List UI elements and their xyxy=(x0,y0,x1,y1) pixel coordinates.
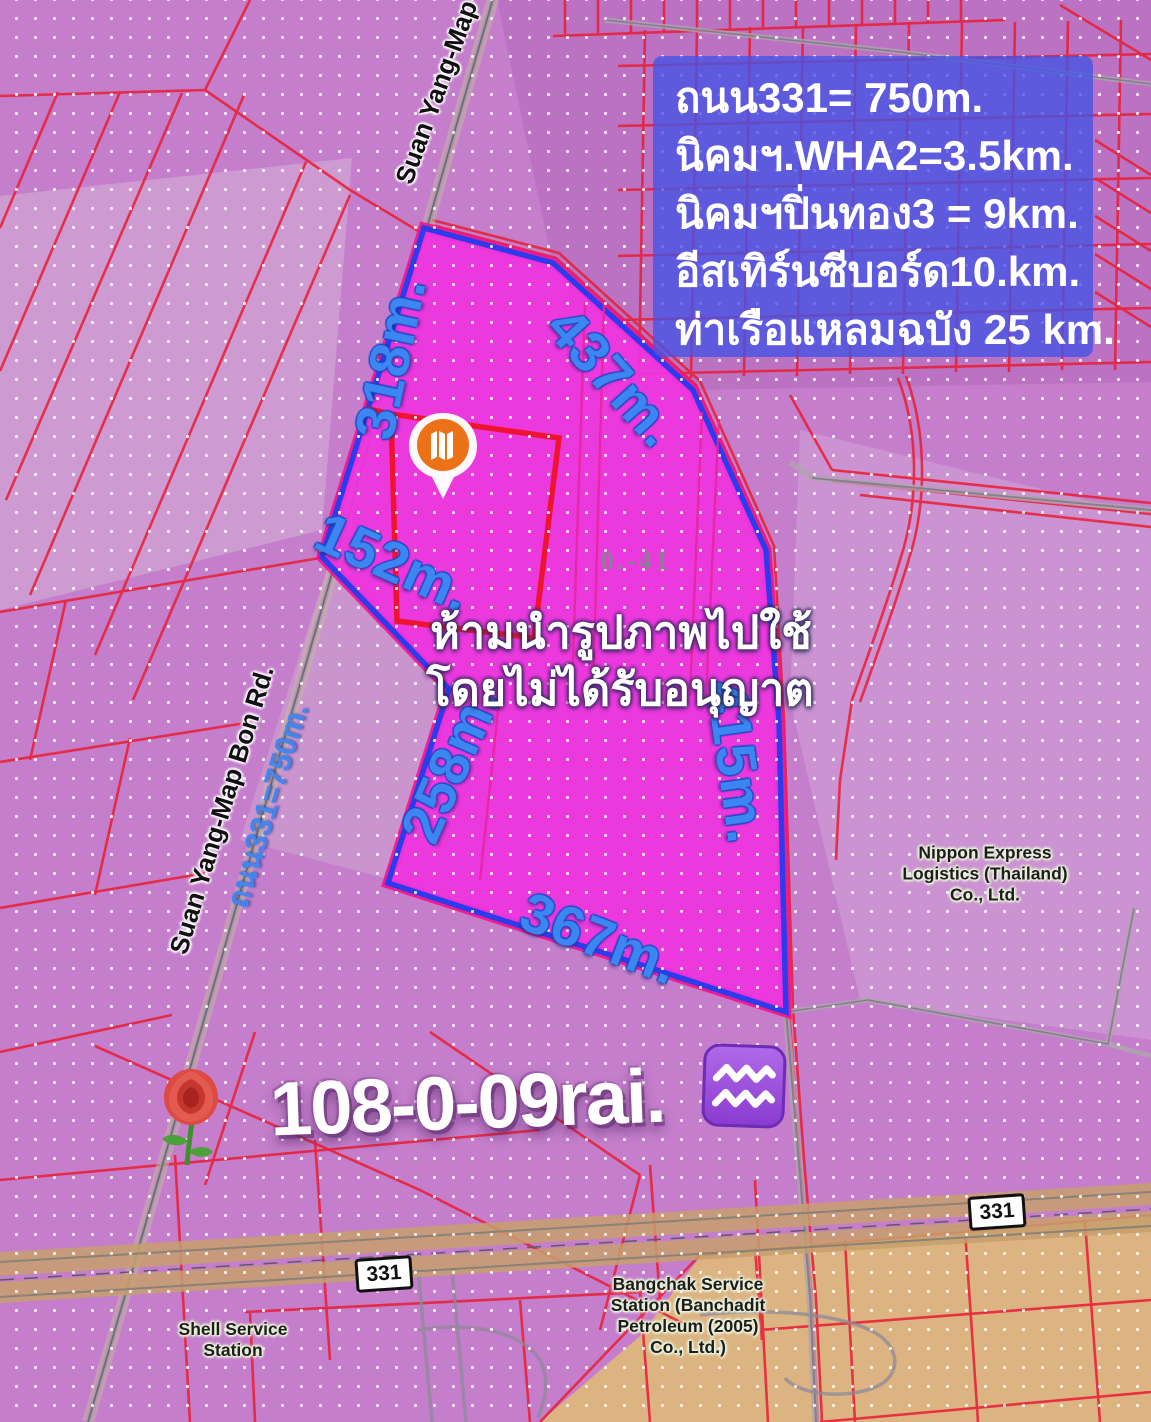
route-badge-331-right: 331 xyxy=(967,1193,1026,1231)
info-line-3: นิคมฯปิ่นทอง3 = 9km. xyxy=(675,185,1093,243)
info-line-5: ท่าเรือแหลมฉบัง 25 km. xyxy=(675,301,1093,359)
rose-emoji xyxy=(142,1065,238,1169)
nippon-line2: Logistics (Thailand) xyxy=(902,864,1067,885)
map-screenshot[interactable]: Suan Yang-Map Bon Rd. Suan Yang-Map Bon … xyxy=(0,0,1151,1422)
nippon-line1: Nippon Express xyxy=(902,843,1067,864)
pin-balloon xyxy=(409,413,477,499)
bangchak-line3: Petroleum (2005) xyxy=(611,1316,766,1337)
area-size-title: 108-0-09rai. xyxy=(268,1053,665,1154)
info-line-1: ถนน331= 750m. xyxy=(675,69,1093,127)
bangchak-line4: Co., Ltd.) xyxy=(611,1337,766,1358)
shell-line2: Station xyxy=(179,1340,288,1361)
place-label-shell: Shell Service Station xyxy=(179,1319,288,1361)
info-line-4: อีสเทิร์นซีบอร์ด10.km. xyxy=(675,243,1093,301)
nippon-line3: Co., Ltd. xyxy=(902,885,1067,906)
info-line-2: นิคมฯ.WHA2=3.5km. xyxy=(675,127,1093,185)
shell-line1: Shell Service xyxy=(179,1319,288,1340)
distance-info-box: ถนน331= 750m. นิคมฯ.WHA2=3.5km. นิคมฯปิ่… xyxy=(653,56,1093,357)
folded-map-icon xyxy=(431,431,453,460)
parcel-code-label: 0.-41 xyxy=(600,546,671,577)
map-pin[interactable] xyxy=(397,407,489,509)
bangchak-line2: Station (Banchadit xyxy=(611,1295,766,1316)
aquarius-emoji xyxy=(700,1042,789,1131)
watermark-line2: โดยไม่ได้รับอนุญาต xyxy=(426,653,813,725)
route-badge-331-left: 331 xyxy=(354,1255,413,1293)
place-label-bangchak: Bangchak Service Station (Banchadit Petr… xyxy=(611,1274,766,1358)
bangchak-line1: Bangchak Service xyxy=(611,1274,766,1295)
place-label-nippon: Nippon Express Logistics (Thailand) Co.,… xyxy=(902,843,1067,906)
